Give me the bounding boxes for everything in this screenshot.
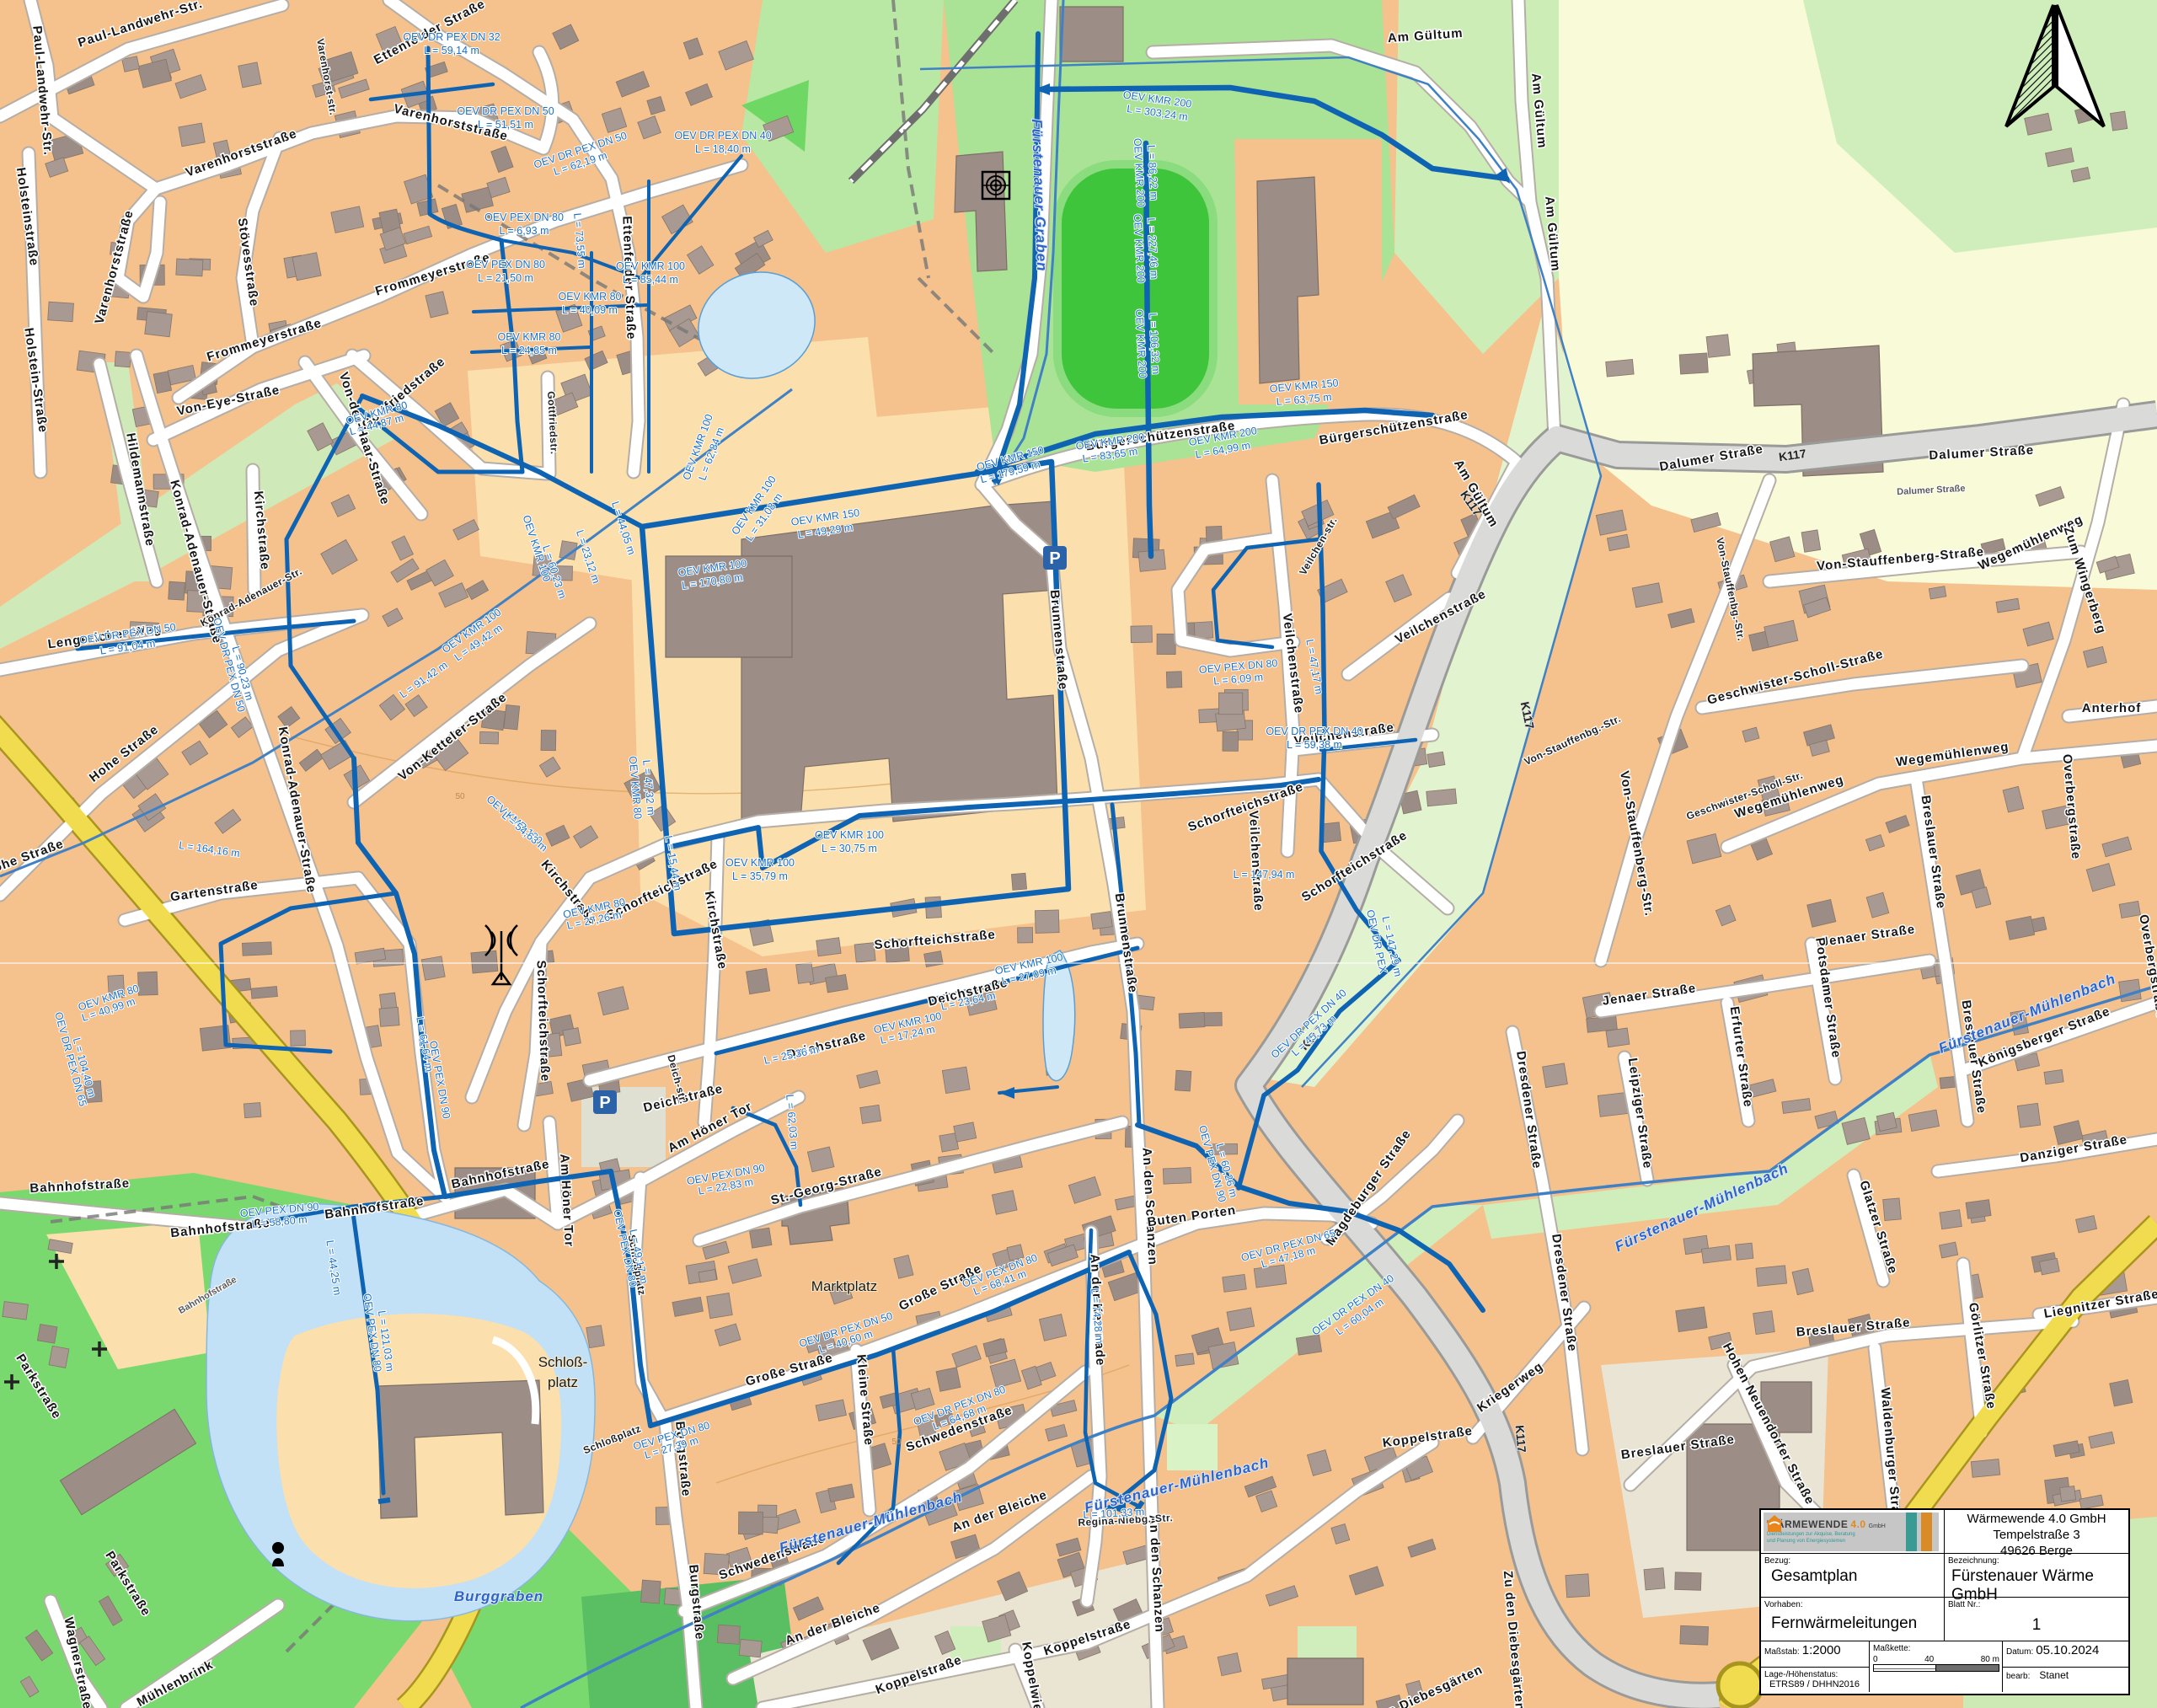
title-block: WÄRMEWENDE 4.0 GmbH Dienstleistungen zur… — [1759, 1508, 2130, 1695]
building — [1598, 1093, 1628, 1117]
vorhaben-cell: Vorhaben: Fernwärmeleitungen — [1761, 1598, 1945, 1641]
building — [37, 1324, 57, 1343]
lage-value: ETRS89 / DHHN2016 — [1769, 1679, 1865, 1689]
massstab-cell: Maßstab: 1:2000 — [1761, 1641, 1869, 1668]
building — [924, 951, 944, 967]
pipe-label: L = 85,44 m — [623, 274, 678, 286]
building — [238, 62, 261, 88]
street-label: Anterhof — [2082, 701, 2142, 715]
logo-version: 4.0 — [1850, 1518, 1865, 1530]
pipe-label: OEV KMR 80 — [558, 291, 621, 303]
parking-letter: P — [1049, 549, 1060, 568]
building — [1091, 912, 1113, 929]
building — [145, 312, 173, 337]
building — [2044, 1069, 2063, 1084]
building — [942, 1067, 970, 1094]
building — [1218, 1653, 1241, 1676]
building — [115, 351, 131, 367]
city-map-canvas[interactable]: Paul-Landwehr-Str.Paul-Landwehr-Str.Vare… — [0, 0, 2157, 1708]
pipe-label: L = 24,85 m — [501, 345, 557, 356]
building — [738, 1512, 763, 1534]
pipe-label: L = 147,94 m — [1234, 869, 1295, 881]
street-label: Marktplatz — [811, 1278, 877, 1294]
pipe-label: L = 59,14 m — [424, 45, 479, 56]
building — [586, 1325, 604, 1348]
building — [1756, 1266, 1787, 1287]
pipe-label: OEV KMR 100 — [725, 857, 795, 869]
building — [1971, 1459, 1999, 1478]
building — [1679, 353, 1708, 374]
street-label: 50 — [455, 792, 465, 801]
building — [1644, 1568, 1665, 1590]
pipe-label: L = 51,51 m — [478, 119, 533, 131]
building — [504, 704, 520, 729]
building — [854, 943, 875, 962]
logo-stripe-teal — [1906, 1513, 1917, 1551]
pipe-label: OEV DR PEX DN 40 — [674, 130, 771, 142]
building — [1966, 1200, 1991, 1219]
building — [1175, 1353, 1195, 1366]
building — [1566, 1574, 1590, 1598]
building — [992, 1191, 1017, 1214]
building — [1179, 1012, 1205, 1028]
street-label: platz — [548, 1374, 578, 1390]
building — [1254, 1265, 1287, 1288]
building — [176, 259, 203, 276]
building — [1223, 731, 1239, 751]
blatt-value: 1 — [1948, 1616, 2125, 1635]
building — [1606, 1028, 1630, 1047]
building — [796, 962, 814, 983]
building — [1675, 1572, 1701, 1591]
building — [251, 987, 278, 999]
building — [816, 938, 841, 956]
pipe-label: OEV PEX DN 80 — [484, 211, 564, 223]
building — [1218, 693, 1242, 715]
building — [739, 1639, 762, 1657]
building — [471, 950, 498, 973]
pipe-label: L = 59,38 m — [1287, 739, 1342, 751]
building — [421, 956, 445, 980]
bezug-cell: Bezug: Gesamtplan — [1761, 1554, 1945, 1597]
building — [1606, 359, 1634, 377]
parking-letter: P — [599, 1094, 610, 1112]
building — [169, 581, 185, 600]
building — [292, 253, 321, 281]
building — [2017, 1103, 2040, 1127]
building — [49, 1346, 69, 1368]
landuse-area — [1167, 1424, 1218, 1470]
building — [1131, 626, 1152, 643]
building — [1035, 910, 1059, 934]
building — [1011, 873, 1026, 890]
pipe-label: L = 6,93 m — [500, 225, 549, 237]
building — [1175, 1070, 1191, 1091]
pipe-label: L = 21,50 m — [478, 272, 533, 284]
building — [746, 968, 769, 993]
bezug-value: Gesamtplan — [1771, 1567, 1940, 1586]
pipe-label: OEV KMR 100 — [815, 829, 884, 841]
company-address: Wärmewende 4.0 GmbH Tempelstraße 3 49626… — [1945, 1510, 2128, 1553]
building — [1680, 1625, 1709, 1645]
building — [1940, 1210, 1962, 1229]
pipe-label: OEV DR PEX DN 40 — [1266, 725, 1362, 737]
building — [1676, 1307, 1707, 1332]
building — [2110, 111, 2127, 131]
building — [1701, 1245, 1731, 1263]
building — [1543, 1063, 1568, 1088]
building — [3, 1302, 29, 1320]
vorhaben-value: Fernwärmeleitungen — [1771, 1614, 1940, 1633]
building — [2060, 1486, 2076, 1502]
building — [1296, 1335, 1321, 1355]
building — [242, 942, 271, 956]
building — [640, 1580, 661, 1604]
building — [138, 972, 158, 995]
roundabout — [1718, 1663, 1762, 1707]
building — [1227, 1308, 1255, 1331]
lage-cell: Lage-/Höhenstatus: ETRS89 / DHHN2016 — [1761, 1668, 1869, 1693]
building — [749, 1228, 771, 1248]
building — [1018, 928, 1033, 943]
building — [48, 302, 74, 322]
waermewende-logo: WÄRMEWENDE 4.0 GmbH Dienstleistungen zur… — [1764, 1513, 1939, 1551]
building — [1426, 789, 1457, 806]
landmark-building — [1060, 7, 1123, 62]
bearb-value: Stanet — [2039, 1669, 2069, 1681]
pipe-label: OEV KMR 80 — [497, 331, 560, 343]
road — [253, 470, 254, 590]
pipe-label: L = 35,79 m — [732, 870, 788, 882]
building — [1736, 1243, 1753, 1260]
water-label: Burggraben — [454, 1588, 543, 1604]
scale-bar: 0 40 80 m — [1873, 1655, 1999, 1672]
masskette-cell: Maßkette: 0 40 80 m — [1870, 1641, 2003, 1692]
building — [936, 1368, 961, 1392]
massstab-value: 1:2000 — [1802, 1643, 1841, 1657]
landmark-building — [1287, 1658, 1363, 1705]
building — [1883, 1198, 1902, 1221]
building — [825, 974, 848, 992]
building — [707, 1293, 733, 1319]
building — [954, 1122, 977, 1142]
building — [1322, 822, 1341, 843]
building — [563, 1028, 581, 1047]
building — [1166, 672, 1181, 688]
pipe-label: L = 18,40 m — [695, 143, 751, 155]
bearb-cell: bearb: Stanet — [2003, 1668, 2128, 1693]
building — [717, 1625, 740, 1644]
street-label: 50 — [891, 1438, 902, 1447]
logo-cell: WÄRMEWENDE 4.0 GmbH Dienstleistungen zur… — [1761, 1510, 1945, 1553]
building — [1753, 1311, 1775, 1335]
road-ref-label: K117 — [1513, 1425, 1529, 1454]
pipe-label: L = 30,75 m — [822, 843, 877, 854]
house-icon — [1764, 1513, 1785, 1534]
building — [291, 1031, 306, 1046]
building — [860, 1105, 881, 1123]
building — [1801, 530, 1821, 552]
bezeichnung-cell: Bezeichnung: Fürstenauer Wärme GmbH — [1945, 1554, 2128, 1597]
pipe-label: OEV DR PEX DN 32 — [403, 31, 500, 43]
building — [479, 731, 498, 744]
pipe-label: OEV KMR 100 — [616, 260, 685, 272]
map-stage[interactable]: Paul-Landwehr-Str.Paul-Landwehr-Str.Vare… — [0, 0, 2157, 1708]
building — [1940, 1242, 1958, 1258]
building — [1706, 335, 1730, 357]
building — [244, 1103, 261, 1118]
datum-cell: Datum: 05.10.2024 — [2003, 1641, 2128, 1668]
datum-value: 05.10.2024 — [2036, 1643, 2099, 1657]
building — [1929, 586, 1946, 599]
logo-gmbh: GmbH — [1869, 1523, 1886, 1529]
street-label: Schloß- — [538, 1354, 588, 1370]
blatt-cell: Blatt Nr.: 1 — [1945, 1598, 2128, 1641]
pipe-label: L = 40,09 m — [562, 304, 618, 316]
pipe-label: OEV PEX DN 80 — [466, 259, 545, 270]
building — [1157, 634, 1175, 654]
logo-stripe-orange — [1921, 1513, 1932, 1551]
building — [541, 731, 556, 751]
pipe-end-bar — [378, 1500, 390, 1502]
building — [179, 123, 205, 147]
building — [379, 1007, 399, 1026]
building — [1163, 1168, 1191, 1185]
building — [1223, 1274, 1246, 1292]
building — [1427, 752, 1445, 767]
pipe-label: OEV DR PEX DN 50 — [457, 105, 554, 117]
building — [1039, 1314, 1066, 1341]
